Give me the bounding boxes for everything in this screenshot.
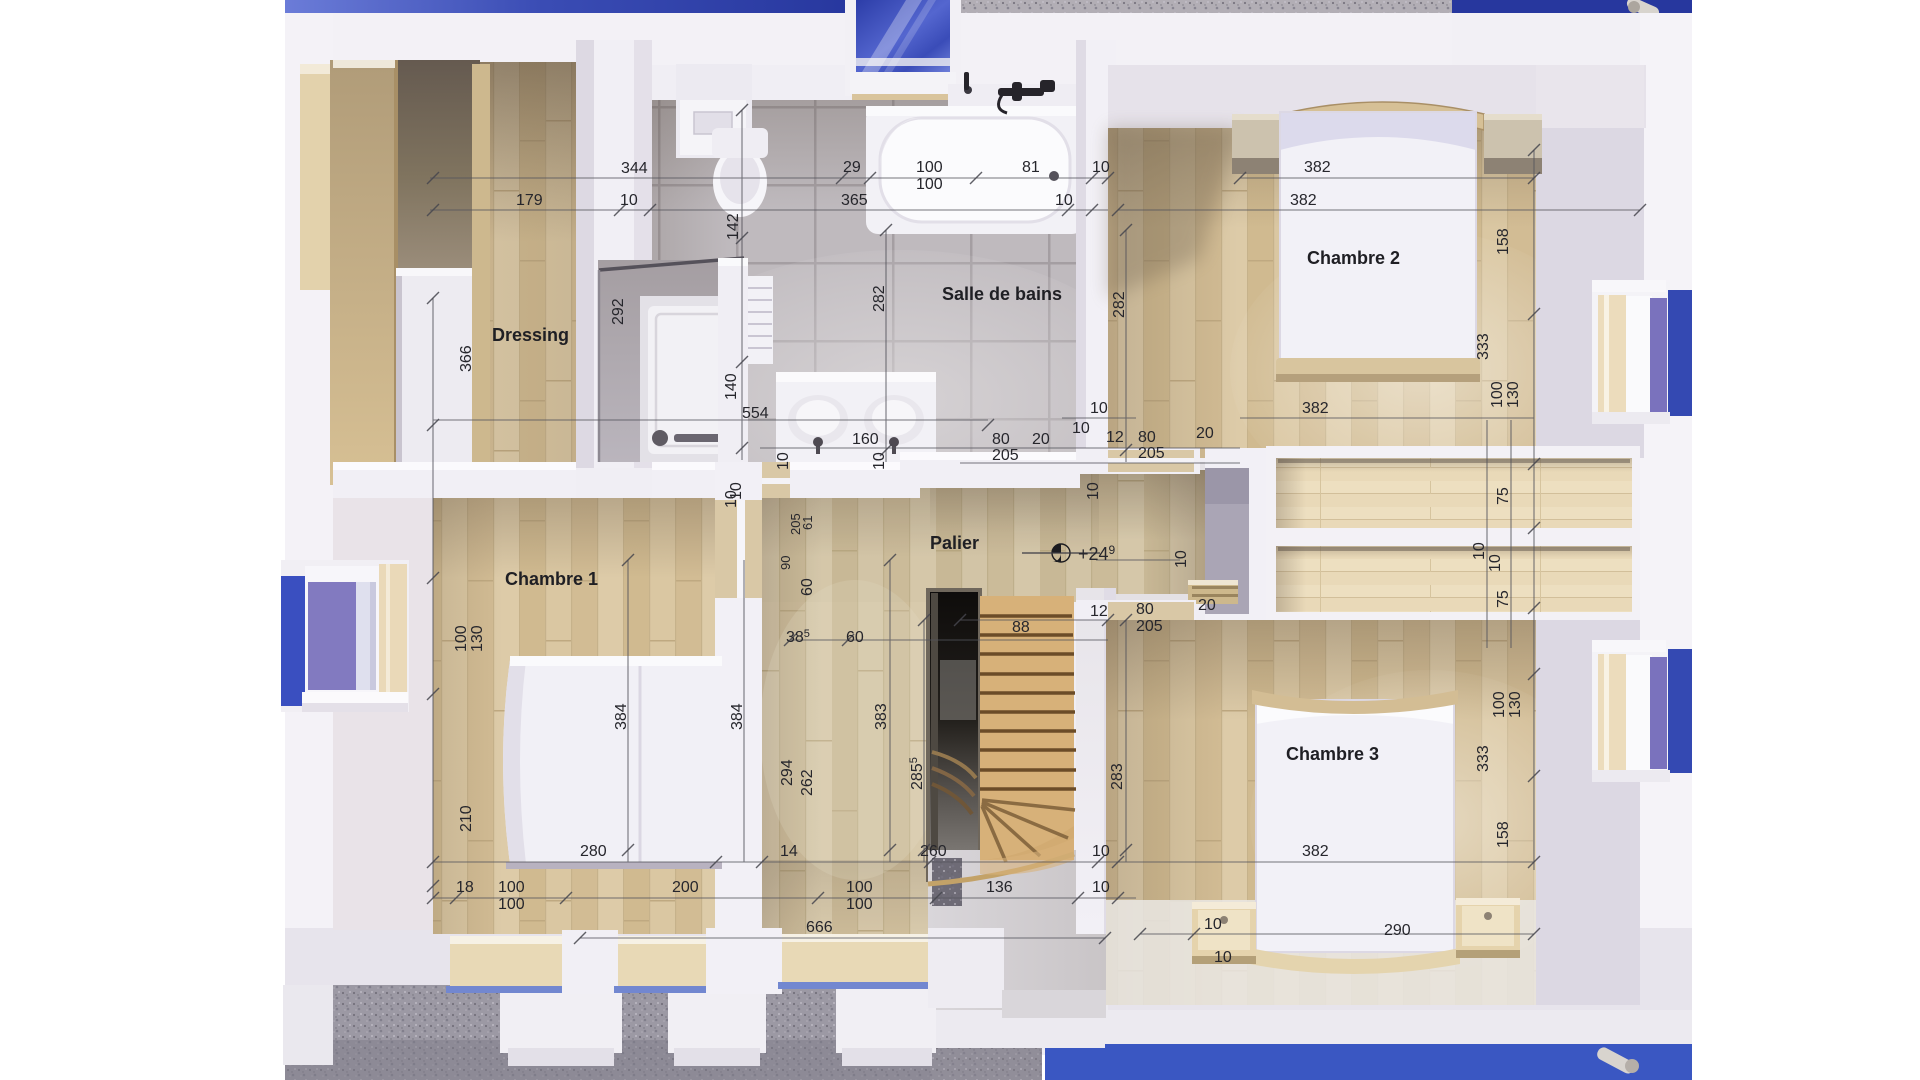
svg-text:100: 100 <box>846 879 873 896</box>
svg-text:554: 554 <box>742 405 769 422</box>
svg-text:75: 75 <box>1495 590 1512 608</box>
svg-text:100: 100 <box>846 896 873 913</box>
svg-text:382: 382 <box>1302 400 1329 417</box>
svg-text:80: 80 <box>1136 601 1154 618</box>
svg-text:10: 10 <box>620 192 638 209</box>
svg-text:382: 382 <box>1302 843 1329 860</box>
svg-text:10: 10 <box>1092 159 1110 176</box>
svg-text:282: 282 <box>871 285 888 312</box>
svg-text:100: 100 <box>1491 691 1508 718</box>
svg-text:20: 20 <box>1196 425 1214 442</box>
svg-text:10: 10 <box>1092 879 1110 896</box>
svg-text:75: 75 <box>1495 487 1512 505</box>
svg-text:262: 262 <box>799 769 816 796</box>
svg-text:Chambre 3: Chambre 3 <box>1286 744 1379 764</box>
svg-text:10: 10 <box>723 490 740 508</box>
svg-text:80: 80 <box>1138 429 1156 446</box>
svg-text:280: 280 <box>580 843 607 860</box>
svg-text:10: 10 <box>1090 400 1108 417</box>
svg-text:81: 81 <box>1022 159 1040 176</box>
svg-text:130: 130 <box>469 625 486 652</box>
svg-text:205: 205 <box>1136 618 1163 635</box>
svg-text:294: 294 <box>779 759 796 786</box>
svg-text:130: 130 <box>1507 691 1524 718</box>
svg-text:283: 283 <box>1109 763 1126 790</box>
svg-text:136: 136 <box>986 879 1013 896</box>
svg-text:10: 10 <box>1204 916 1222 933</box>
svg-text:383: 383 <box>873 703 890 730</box>
svg-text:100: 100 <box>453 625 470 652</box>
svg-text:344: 344 <box>621 160 648 177</box>
svg-text:10: 10 <box>1173 550 1190 568</box>
svg-text:365: 365 <box>841 192 868 209</box>
svg-text:10: 10 <box>775 452 792 470</box>
svg-text:29: 29 <box>843 159 861 176</box>
svg-text:20: 20 <box>1032 431 1050 448</box>
svg-text:100: 100 <box>916 176 943 193</box>
svg-text:14: 14 <box>780 843 798 860</box>
svg-text:100: 100 <box>1489 381 1506 408</box>
svg-text:60: 60 <box>799 578 816 596</box>
svg-text:20: 20 <box>1198 597 1216 614</box>
svg-text:333: 333 <box>1475 745 1492 772</box>
svg-text:260: 260 <box>920 843 947 860</box>
svg-text:80: 80 <box>992 431 1010 448</box>
svg-text:130: 130 <box>1505 381 1522 408</box>
svg-text:290: 290 <box>1384 922 1411 939</box>
svg-text:366: 366 <box>458 345 475 372</box>
svg-text:666: 666 <box>806 919 833 936</box>
svg-text:61: 61 <box>800 516 815 530</box>
svg-text:10: 10 <box>1055 192 1073 209</box>
svg-text:18: 18 <box>456 879 474 896</box>
svg-text:158: 158 <box>1495 228 1512 255</box>
svg-text:90: 90 <box>778 556 793 570</box>
svg-text:140: 140 <box>723 373 740 400</box>
svg-text:Palier: Palier <box>930 533 979 553</box>
svg-text:88: 88 <box>1012 619 1030 636</box>
svg-text:333: 333 <box>1475 333 1492 360</box>
svg-text:10: 10 <box>1487 554 1504 572</box>
svg-text:382: 382 <box>1304 159 1331 176</box>
svg-text:200: 200 <box>672 879 699 896</box>
svg-text:210: 210 <box>458 805 475 832</box>
svg-text:382: 382 <box>1290 192 1317 209</box>
svg-text:179: 179 <box>516 192 543 209</box>
svg-text:Chambre 1: Chambre 1 <box>505 569 598 589</box>
svg-text:60: 60 <box>846 629 864 646</box>
svg-text:100: 100 <box>916 159 943 176</box>
svg-text:158: 158 <box>1495 821 1512 848</box>
svg-text:205: 205 <box>1138 445 1165 462</box>
svg-text:10: 10 <box>1072 420 1090 437</box>
svg-text:100: 100 <box>498 879 525 896</box>
svg-text:292: 292 <box>610 298 627 325</box>
svg-text:10: 10 <box>871 452 888 470</box>
svg-text:384: 384 <box>729 703 746 730</box>
svg-text:205: 205 <box>992 447 1019 464</box>
svg-text:10: 10 <box>1471 542 1488 560</box>
svg-text:12: 12 <box>1106 429 1124 446</box>
svg-text:282: 282 <box>1111 291 1128 318</box>
svg-text:10: 10 <box>1085 482 1102 500</box>
svg-text:142: 142 <box>725 213 742 240</box>
svg-text:Chambre 2: Chambre 2 <box>1307 248 1400 268</box>
svg-text:160: 160 <box>852 431 879 448</box>
svg-text:384: 384 <box>613 703 630 730</box>
svg-text:Salle de bains: Salle de bains <box>942 284 1062 304</box>
svg-text:10: 10 <box>1092 843 1110 860</box>
svg-text:12: 12 <box>1090 603 1108 620</box>
svg-text:100: 100 <box>498 896 525 913</box>
svg-text:Dressing: Dressing <box>492 325 569 345</box>
svg-text:10: 10 <box>1214 949 1232 966</box>
